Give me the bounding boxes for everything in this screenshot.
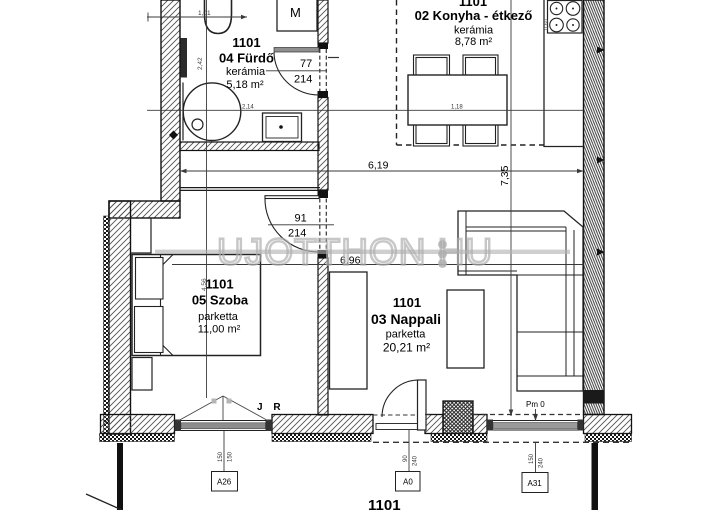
svg-text:90: 90 [403,455,409,462]
svg-text:20,21 m²: 20,21 m² [383,341,430,355]
svg-text:1,18: 1,18 [451,105,463,111]
svg-text:0,60: 0,60 [544,19,550,30]
svg-text:214: 214 [294,74,312,86]
svg-text:05 Szoba: 05 Szoba [192,293,249,308]
svg-text:03 Nappali: 03 Nappali [371,311,441,327]
svg-text:1101: 1101 [232,35,260,50]
svg-text:1,01: 1,01 [198,10,211,17]
svg-text:2,14: 2,14 [242,105,254,111]
svg-text:A31: A31 [528,479,543,488]
svg-text:kerámia: kerámia [226,66,266,78]
svg-text:77: 77 [300,58,312,70]
svg-text:150: 150 [529,453,535,464]
svg-text:2,42: 2,42 [197,57,204,70]
svg-text:02 Konyha - étkező: 02 Konyha - étkező [415,8,533,23]
svg-text:5,18 m²: 5,18 m² [226,79,264,91]
svg-text:150: 150 [218,451,224,462]
svg-text:Pm 0: Pm 0 [526,400,545,409]
svg-text:M: M [290,5,301,20]
svg-text:91: 91 [295,213,307,225]
svg-text:7,35: 7,35 [499,165,511,186]
svg-text:04 Fürdő: 04 Fürdő [219,51,274,66]
svg-text:J R: J R [257,402,285,413]
svg-text:A0: A0 [403,478,413,487]
svg-text:kerámia: kerámia [454,25,494,37]
svg-text:1101: 1101 [368,497,401,510]
svg-text:parketta: parketta [386,329,427,341]
svg-text:150: 150 [228,451,234,462]
svg-text:1101: 1101 [393,295,421,310]
svg-text:240: 240 [413,455,419,466]
svg-text:6,19: 6,19 [368,160,389,172]
svg-text:8,78 m²: 8,78 m² [455,36,493,48]
svg-text:A26: A26 [217,478,232,487]
svg-text:UJOTTHON HU: UJOTTHON HU [217,232,493,273]
svg-text:1101: 1101 [205,277,233,292]
svg-text:240: 240 [539,457,545,468]
svg-text:parketta: parketta [198,311,239,323]
svg-text:11,00 m²: 11,00 m² [198,324,241,336]
